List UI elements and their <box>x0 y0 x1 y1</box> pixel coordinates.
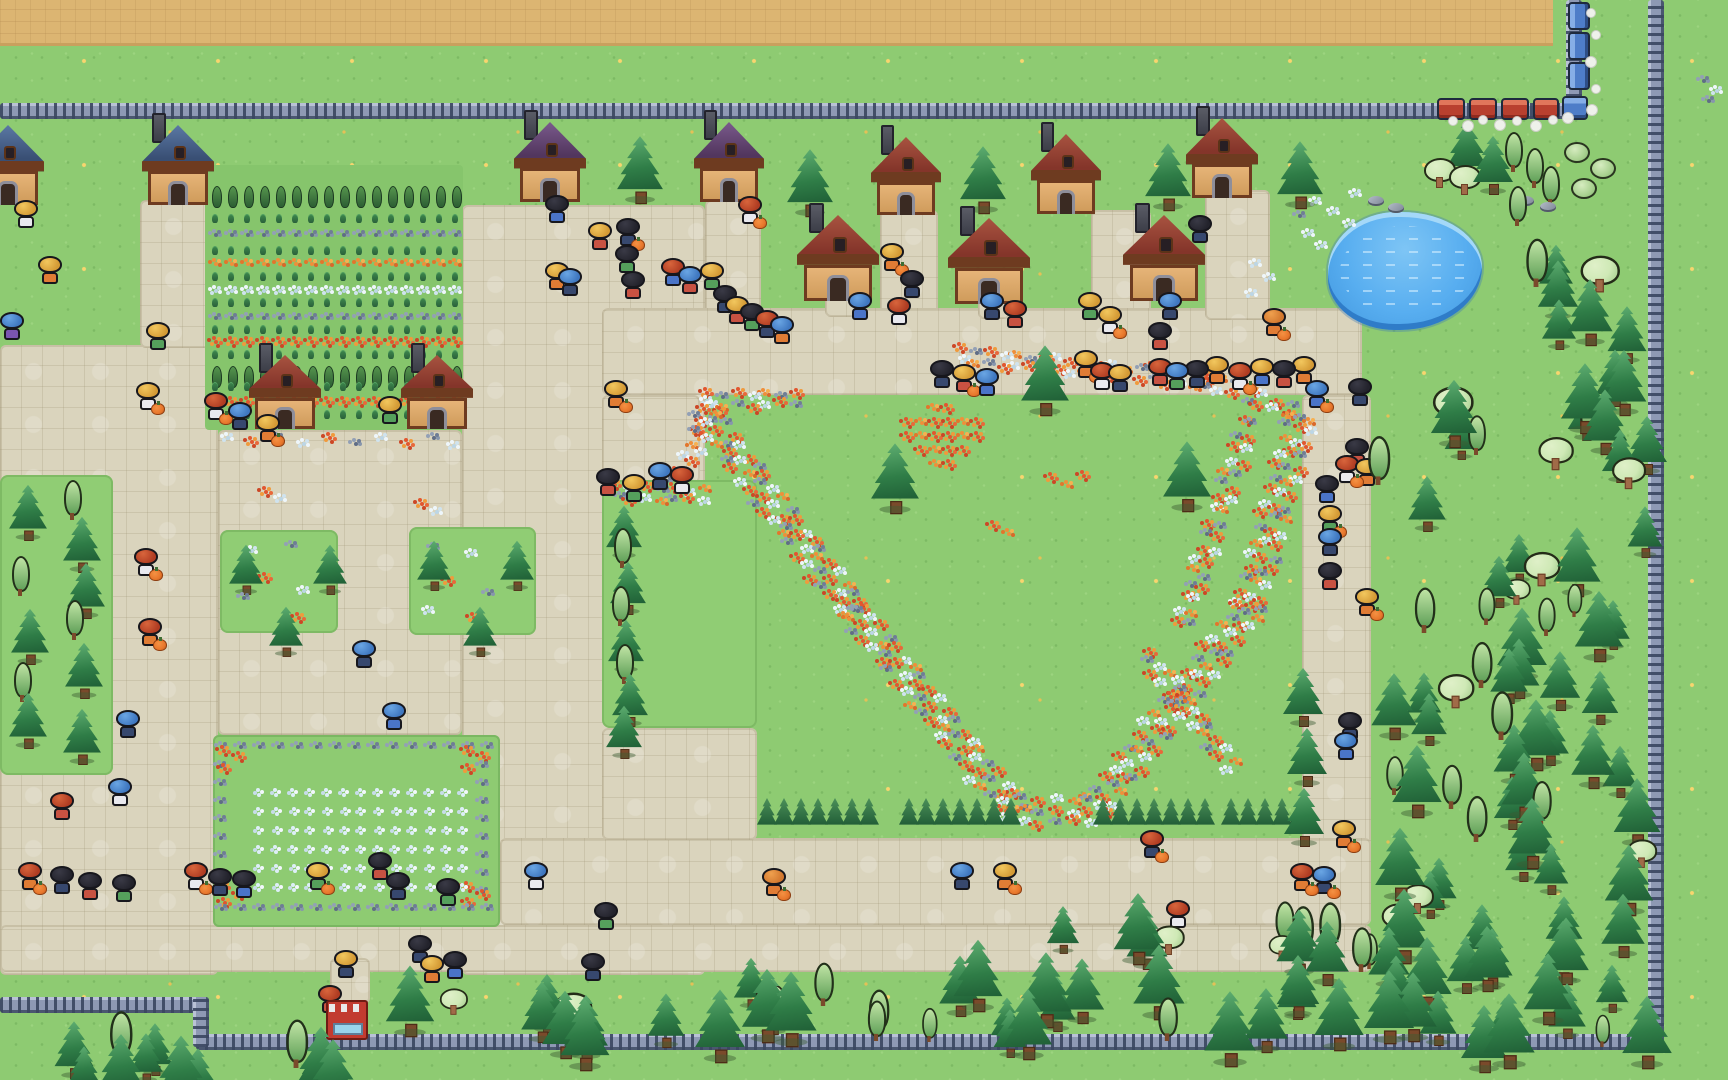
villager-hair <box>1355 588 1379 605</box>
flower-cluster <box>479 850 483 854</box>
villager-hair <box>1262 308 1286 325</box>
crop-plant <box>372 325 378 334</box>
flower-cluster <box>760 492 764 496</box>
crop-plant <box>292 246 298 255</box>
flower-cluster <box>220 745 224 749</box>
house[interactable] <box>146 125 210 205</box>
flower-cluster <box>420 285 424 289</box>
crop-plant <box>276 272 282 281</box>
flower-cluster <box>837 588 841 592</box>
villager[interactable] <box>78 872 102 900</box>
flower-cluster <box>1272 503 1276 507</box>
flower-cluster <box>1147 669 1151 673</box>
villager[interactable] <box>38 256 62 284</box>
flower-cluster <box>452 336 456 340</box>
flower-cluster <box>858 619 862 623</box>
flower-cluster <box>351 741 355 745</box>
flower-cluster <box>340 312 344 316</box>
villager[interactable] <box>1250 358 1274 386</box>
villager[interactable] <box>1166 900 1190 928</box>
flower-cluster <box>986 774 990 778</box>
villager[interactable] <box>1334 732 1358 760</box>
door[interactable] <box>827 275 849 301</box>
flower-cluster <box>480 889 484 893</box>
villager-hair <box>670 466 694 483</box>
flower-cluster <box>452 258 456 262</box>
villager-hair <box>1228 362 1252 379</box>
flower-cluster <box>724 440 728 444</box>
villager[interactable] <box>594 902 618 930</box>
villager-hair <box>1003 300 1027 317</box>
steam-puff <box>1586 104 1598 116</box>
pine-tree <box>1408 476 1446 531</box>
flower-cluster <box>1218 476 1222 480</box>
villager-hair <box>408 935 432 952</box>
flower-cluster <box>358 845 362 849</box>
crop-plant <box>292 325 298 334</box>
rock <box>1540 202 1556 212</box>
flower-cluster <box>837 604 841 608</box>
pine-tree <box>309 1039 358 1080</box>
villager[interactable] <box>386 872 410 900</box>
flower-cluster <box>260 285 264 289</box>
villager[interactable] <box>1318 562 1342 590</box>
chimney <box>152 113 166 143</box>
pine-tree <box>1392 745 1442 817</box>
villager[interactable] <box>232 870 256 898</box>
cypress-tree <box>1526 148 1542 188</box>
pine-tree <box>1371 673 1416 739</box>
flower-cluster <box>445 807 449 811</box>
villager-hair <box>545 195 569 212</box>
villager[interactable] <box>950 862 974 890</box>
villager[interactable] <box>615 245 639 273</box>
villager[interactable] <box>980 292 1004 320</box>
villager[interactable] <box>1315 475 1339 503</box>
flower-cluster <box>1083 794 1087 798</box>
flower-cluster <box>781 529 785 533</box>
flower-cluster <box>1088 818 1092 822</box>
villager[interactable] <box>900 270 924 298</box>
flower-cluster <box>813 536 817 540</box>
crop-plant <box>212 382 218 391</box>
flower-cluster <box>358 788 362 792</box>
house[interactable] <box>875 137 937 215</box>
chimney <box>1041 122 1054 152</box>
flower-cluster <box>1245 434 1249 438</box>
flower-cluster <box>913 679 917 683</box>
flower-cluster <box>972 752 976 756</box>
flower-cluster <box>370 903 374 907</box>
pine-tree <box>417 541 451 590</box>
flower-cluster <box>428 826 432 830</box>
villager-hair <box>980 292 1004 309</box>
flower-cluster <box>340 285 344 289</box>
flower-cluster <box>1272 458 1276 462</box>
crop-plant <box>308 246 314 255</box>
flower-cluster <box>340 229 344 233</box>
villager-hair <box>18 862 42 879</box>
villager-hair <box>1332 820 1356 837</box>
villager[interactable] <box>1148 322 1172 350</box>
flower-cluster <box>1224 649 1228 653</box>
flower-cluster <box>394 807 398 811</box>
flower-cluster <box>308 285 312 289</box>
flower-cluster <box>1281 462 1285 466</box>
villager-hair <box>334 950 358 967</box>
flower-cluster <box>926 685 930 689</box>
flower-cluster <box>292 258 296 262</box>
attic-window <box>4 146 17 160</box>
flower-cluster <box>1144 655 1148 659</box>
villager-hair <box>1348 378 1372 395</box>
pine-tree <box>1145 143 1191 210</box>
crop-plant <box>244 214 250 223</box>
flower-cluster <box>1170 699 1174 703</box>
villager[interactable] <box>352 640 376 668</box>
villager-hair <box>678 266 702 283</box>
villager[interactable] <box>930 360 954 388</box>
crop-plant <box>404 186 414 208</box>
crop-plant <box>292 214 298 223</box>
flower-cluster <box>761 400 765 404</box>
villager[interactable] <box>146 322 170 350</box>
flower-cluster <box>356 396 360 400</box>
flower-cluster <box>332 903 336 907</box>
crop-plant <box>244 186 254 208</box>
pumpkin <box>33 883 47 895</box>
flower-cluster <box>904 417 908 421</box>
stone-path <box>1205 190 1270 320</box>
flower-cluster <box>1281 506 1285 510</box>
flower-cluster <box>420 312 424 316</box>
flower-cluster <box>1233 599 1237 603</box>
flower-cluster <box>436 285 440 289</box>
flower-cluster <box>757 477 761 481</box>
crop-plant <box>372 246 378 255</box>
pine-tree <box>1287 728 1327 786</box>
flower-cluster <box>1231 441 1235 445</box>
flower-cluster <box>256 883 260 887</box>
villager[interactable] <box>228 402 252 430</box>
flower-cluster <box>1217 641 1221 645</box>
house[interactable] <box>802 215 874 301</box>
crop-plant <box>228 272 234 281</box>
flower-cluster <box>1197 690 1201 694</box>
flower-cluster <box>392 845 396 849</box>
house[interactable] <box>0 125 40 205</box>
villager[interactable] <box>443 951 467 979</box>
flower-cluster <box>845 613 849 617</box>
villager-body <box>116 890 132 902</box>
villager[interactable] <box>382 702 406 730</box>
flower-cluster <box>1193 669 1197 673</box>
villager[interactable] <box>1165 362 1189 390</box>
villager-body <box>562 284 578 296</box>
flower-cluster <box>1293 475 1297 479</box>
villager[interactable] <box>436 878 460 906</box>
flower-cluster <box>927 701 931 705</box>
villager-hair <box>1148 322 1172 339</box>
flower-cluster <box>273 788 277 792</box>
villager-body <box>1209 372 1225 384</box>
flower-cluster <box>1186 590 1190 594</box>
villager[interactable] <box>208 868 232 896</box>
flower-cluster <box>1232 469 1236 473</box>
flower-cluster <box>1116 751 1120 755</box>
flower-cluster <box>426 845 430 849</box>
door[interactable] <box>720 178 739 202</box>
villager[interactable] <box>588 222 612 250</box>
door[interactable] <box>168 181 187 205</box>
flower-cluster <box>963 760 967 764</box>
villager[interactable] <box>50 792 74 820</box>
villager[interactable] <box>116 710 140 738</box>
village-map <box>0 0 1728 1080</box>
house[interactable] <box>1128 215 1200 301</box>
flower-cluster <box>325 807 329 811</box>
flower-cluster <box>1052 817 1056 821</box>
pine-tree <box>68 1046 100 1080</box>
flower-cluster <box>377 826 381 830</box>
pine-tree <box>386 966 435 1036</box>
steam-puff <box>1448 116 1458 126</box>
villager[interactable] <box>678 266 702 294</box>
door[interactable] <box>897 192 916 215</box>
pine-tree <box>269 607 303 656</box>
flower-cluster <box>735 399 739 403</box>
villager[interactable] <box>622 474 646 502</box>
villager[interactable] <box>545 195 569 223</box>
flower-cluster <box>727 447 731 451</box>
crop-plant <box>308 186 318 208</box>
villager-body <box>954 878 970 890</box>
crop-plant <box>212 272 218 281</box>
flower-cluster <box>724 455 728 459</box>
flower-cluster <box>332 741 336 745</box>
cypress-tree <box>66 600 82 640</box>
flower-cluster <box>370 741 374 745</box>
flower-cluster <box>217 850 221 854</box>
flower-cluster <box>723 417 727 421</box>
villager[interactable] <box>770 316 794 344</box>
flower-cluster <box>1257 596 1261 600</box>
door[interactable] <box>1057 190 1076 214</box>
villager-body <box>390 888 406 900</box>
crop-plant <box>404 246 410 255</box>
steam-puff <box>1585 56 1597 68</box>
flower-cluster <box>420 336 424 340</box>
villager[interactable] <box>887 297 911 325</box>
flower-cluster <box>468 548 472 552</box>
house[interactable] <box>1190 118 1254 198</box>
flower-cluster <box>452 285 456 289</box>
flower-cluster <box>1213 750 1217 754</box>
house[interactable] <box>698 122 760 202</box>
villager-body <box>1254 374 1270 386</box>
flower-cluster <box>814 552 818 556</box>
pine-tree <box>1575 591 1623 661</box>
flower-cluster <box>479 814 483 818</box>
villager[interactable] <box>0 312 24 340</box>
flower-cluster <box>1247 548 1251 552</box>
villager[interactable] <box>1318 528 1342 556</box>
pine-tree <box>1622 996 1672 1068</box>
flower-cluster <box>236 751 240 755</box>
villager[interactable] <box>596 468 620 496</box>
villager-body <box>338 966 354 978</box>
flower-cluster <box>460 788 464 792</box>
flower-cluster <box>1296 210 1300 214</box>
villager[interactable] <box>581 953 605 981</box>
cypress-tree <box>814 963 831 1006</box>
flower-cluster <box>733 432 737 436</box>
crop-plant <box>404 272 410 281</box>
flower-cluster <box>957 342 961 346</box>
flower-cluster <box>436 336 440 340</box>
flower-cluster <box>1253 576 1257 580</box>
flower-cluster <box>1243 415 1247 419</box>
attic-window <box>1159 237 1173 252</box>
flower-cluster <box>372 312 376 316</box>
flower-cluster <box>428 883 432 887</box>
flower-cluster <box>256 845 260 849</box>
pine-tree <box>313 545 347 594</box>
pine-tree <box>765 972 816 1046</box>
flower-cluster <box>962 745 966 749</box>
flower-cluster <box>1186 618 1190 622</box>
crop-plant <box>308 214 314 223</box>
flower-cluster <box>713 410 717 414</box>
pine-tree <box>1364 970 1414 1043</box>
villager-hair <box>306 862 330 879</box>
villager[interactable] <box>1348 378 1372 406</box>
flower-cluster <box>1071 809 1075 813</box>
flower-cluster <box>976 767 980 771</box>
villager-hair <box>1166 900 1190 917</box>
flower-cluster <box>237 741 241 745</box>
flower-cluster <box>793 400 797 404</box>
crop-plant <box>436 298 442 307</box>
flower-cluster <box>937 693 941 697</box>
villager[interactable] <box>1272 360 1296 388</box>
villager[interactable] <box>14 200 38 228</box>
flower-cluster <box>974 417 978 421</box>
villager[interactable] <box>670 466 694 494</box>
villager-hair <box>436 878 460 895</box>
flower-cluster <box>770 499 774 503</box>
villager[interactable] <box>524 862 548 890</box>
house[interactable] <box>518 122 582 202</box>
pumpkin <box>321 883 335 895</box>
villager-hair <box>116 710 140 727</box>
pine-tree <box>1163 441 1211 511</box>
crop-plant <box>420 246 426 255</box>
flower-cluster <box>426 788 430 792</box>
villager[interactable] <box>848 292 872 320</box>
flower-cluster <box>1713 85 1717 89</box>
flower-cluster <box>377 883 381 887</box>
flower-cluster <box>847 581 851 585</box>
flower-cluster <box>409 826 413 830</box>
train-car[interactable] <box>1568 32 1590 60</box>
flower-cluster <box>893 679 897 683</box>
flower-cluster <box>659 497 663 501</box>
villager[interactable] <box>621 271 645 299</box>
flower-cluster <box>433 506 437 510</box>
villager[interactable] <box>378 396 402 424</box>
villager-hair <box>232 870 256 887</box>
flower-cluster <box>324 845 328 849</box>
villager[interactable] <box>648 462 672 490</box>
cypress-tree <box>64 480 80 520</box>
flower-cluster <box>777 396 781 400</box>
flower-cluster <box>404 336 408 340</box>
door[interactable] <box>1212 174 1231 198</box>
pine-tree <box>11 609 49 664</box>
flower-cluster <box>218 903 222 907</box>
villager[interactable] <box>108 778 132 806</box>
flower-cluster <box>340 336 344 340</box>
crop-plant <box>436 246 442 255</box>
flower-cluster <box>1203 743 1207 747</box>
flower-cluster <box>757 462 761 466</box>
crop-plant <box>244 350 250 359</box>
pine-tree <box>960 146 1006 213</box>
villager[interactable] <box>1108 364 1132 392</box>
flower-cluster <box>904 431 908 435</box>
villager[interactable] <box>112 874 136 902</box>
crop-plant <box>244 298 250 307</box>
villager-hair <box>621 271 645 288</box>
crop-plant <box>372 350 378 359</box>
villager-body <box>682 282 698 294</box>
villager[interactable] <box>50 866 74 894</box>
flower-cluster <box>300 438 304 442</box>
flower-cluster <box>228 396 232 400</box>
villager[interactable] <box>1003 300 1027 328</box>
chimney <box>1135 203 1150 233</box>
crop-plant <box>228 325 234 334</box>
flower-cluster <box>1258 568 1262 572</box>
crop-plant <box>324 382 330 391</box>
house[interactable] <box>1035 134 1097 214</box>
flower-cluster <box>941 723 945 727</box>
villager-body <box>626 490 642 502</box>
villager[interactable] <box>334 950 358 978</box>
villager[interactable] <box>558 268 582 296</box>
villager[interactable] <box>1158 292 1182 320</box>
flower-cluster <box>1190 564 1194 568</box>
flower-cluster <box>1177 606 1181 610</box>
crop-plant <box>340 214 346 223</box>
villager-hair <box>596 468 620 485</box>
flower-cluster <box>356 258 360 262</box>
villager-body <box>236 886 252 898</box>
house[interactable] <box>405 355 469 429</box>
pine-tree <box>1284 788 1324 846</box>
pond <box>1328 212 1482 330</box>
flower-cluster <box>1127 744 1131 748</box>
flower-cluster <box>326 826 330 830</box>
villager-body <box>979 384 995 396</box>
door[interactable] <box>427 407 446 429</box>
flower-cluster <box>1177 684 1181 688</box>
flower-cluster <box>1201 545 1205 549</box>
villager[interactable] <box>975 368 999 396</box>
villager-body <box>1007 316 1023 328</box>
attic-window <box>984 240 998 255</box>
